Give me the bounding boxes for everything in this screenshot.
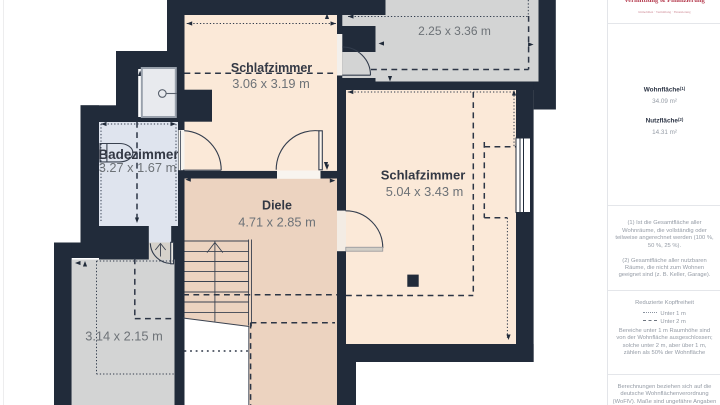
- svg-text:3.14 x 2.15 m: 3.14 x 2.15 m: [85, 329, 163, 344]
- svg-text:Schlafzimmer: Schlafzimmer: [381, 168, 466, 183]
- svg-text:5.04 x 3.43 m: 5.04 x 3.43 m: [386, 184, 464, 199]
- svg-text:3.06 x 3.19 m: 3.06 x 3.19 m: [232, 76, 310, 91]
- svg-text:Diele: Diele: [262, 199, 292, 213]
- svg-text:3.27 x 1.67 m: 3.27 x 1.67 m: [99, 160, 177, 175]
- svg-text:Schlafzimmer: Schlafzimmer: [231, 61, 312, 75]
- svg-text:4.71 x 2.85 m: 4.71 x 2.85 m: [238, 215, 316, 230]
- svg-text:2.25 x 3.36 m: 2.25 x 3.36 m: [418, 24, 491, 38]
